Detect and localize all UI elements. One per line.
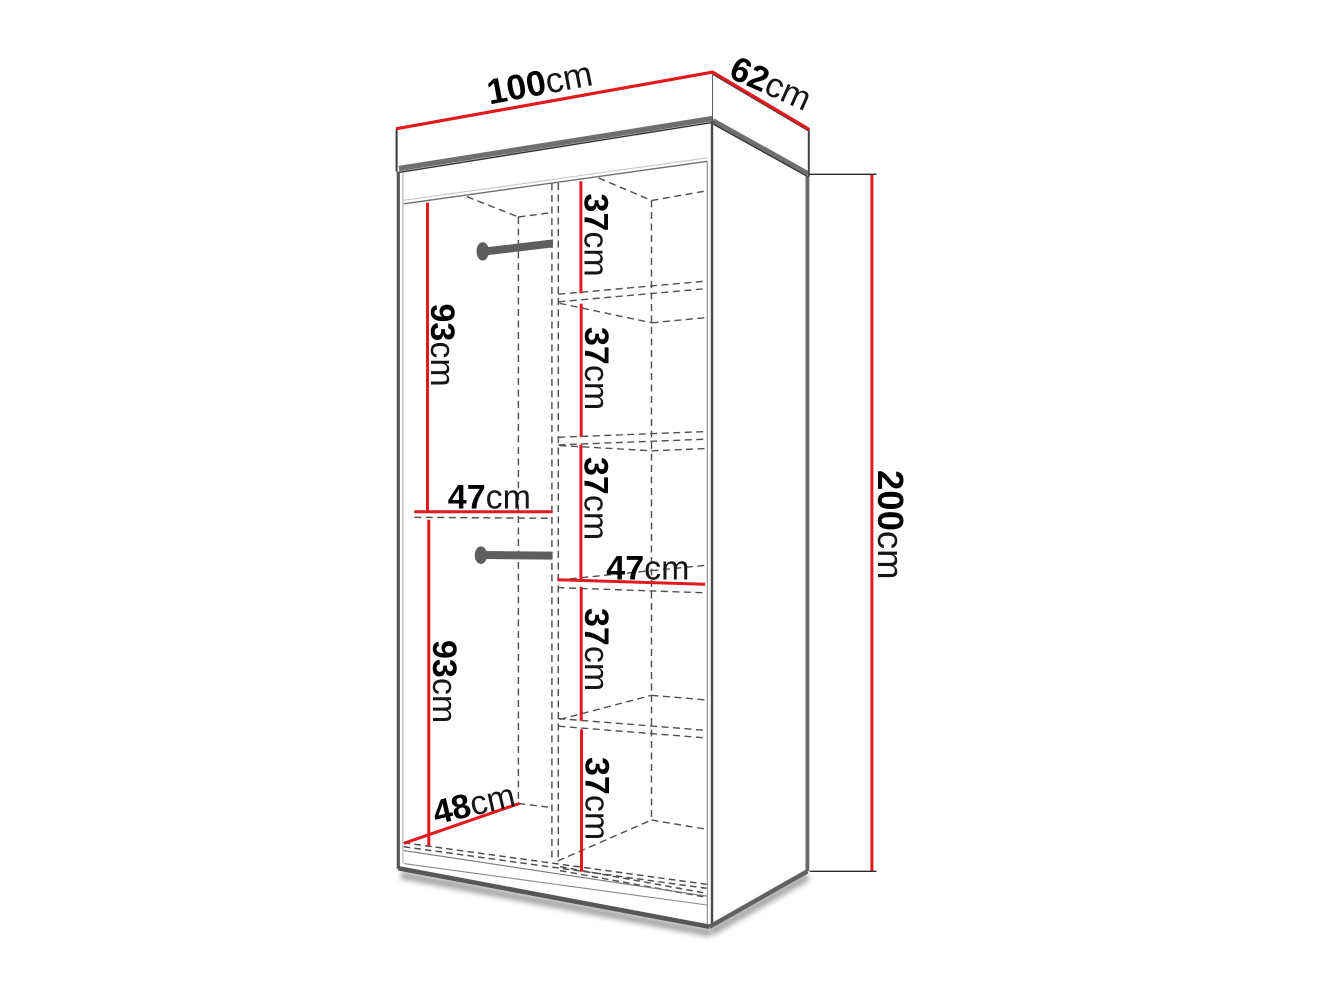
svg-text:37cm: 37cm: [577, 194, 615, 277]
svg-text:37cm: 37cm: [577, 608, 615, 691]
svg-text:47cm: 47cm: [448, 479, 531, 517]
svg-text:93cm: 93cm: [423, 304, 461, 387]
svg-text:200cm: 200cm: [870, 470, 911, 580]
svg-text:37cm: 37cm: [577, 327, 615, 410]
svg-text:37cm: 37cm: [577, 457, 615, 540]
svg-text:37cm: 37cm: [577, 757, 615, 840]
svg-text:93cm: 93cm: [425, 640, 463, 723]
svg-text:47cm: 47cm: [606, 550, 689, 588]
